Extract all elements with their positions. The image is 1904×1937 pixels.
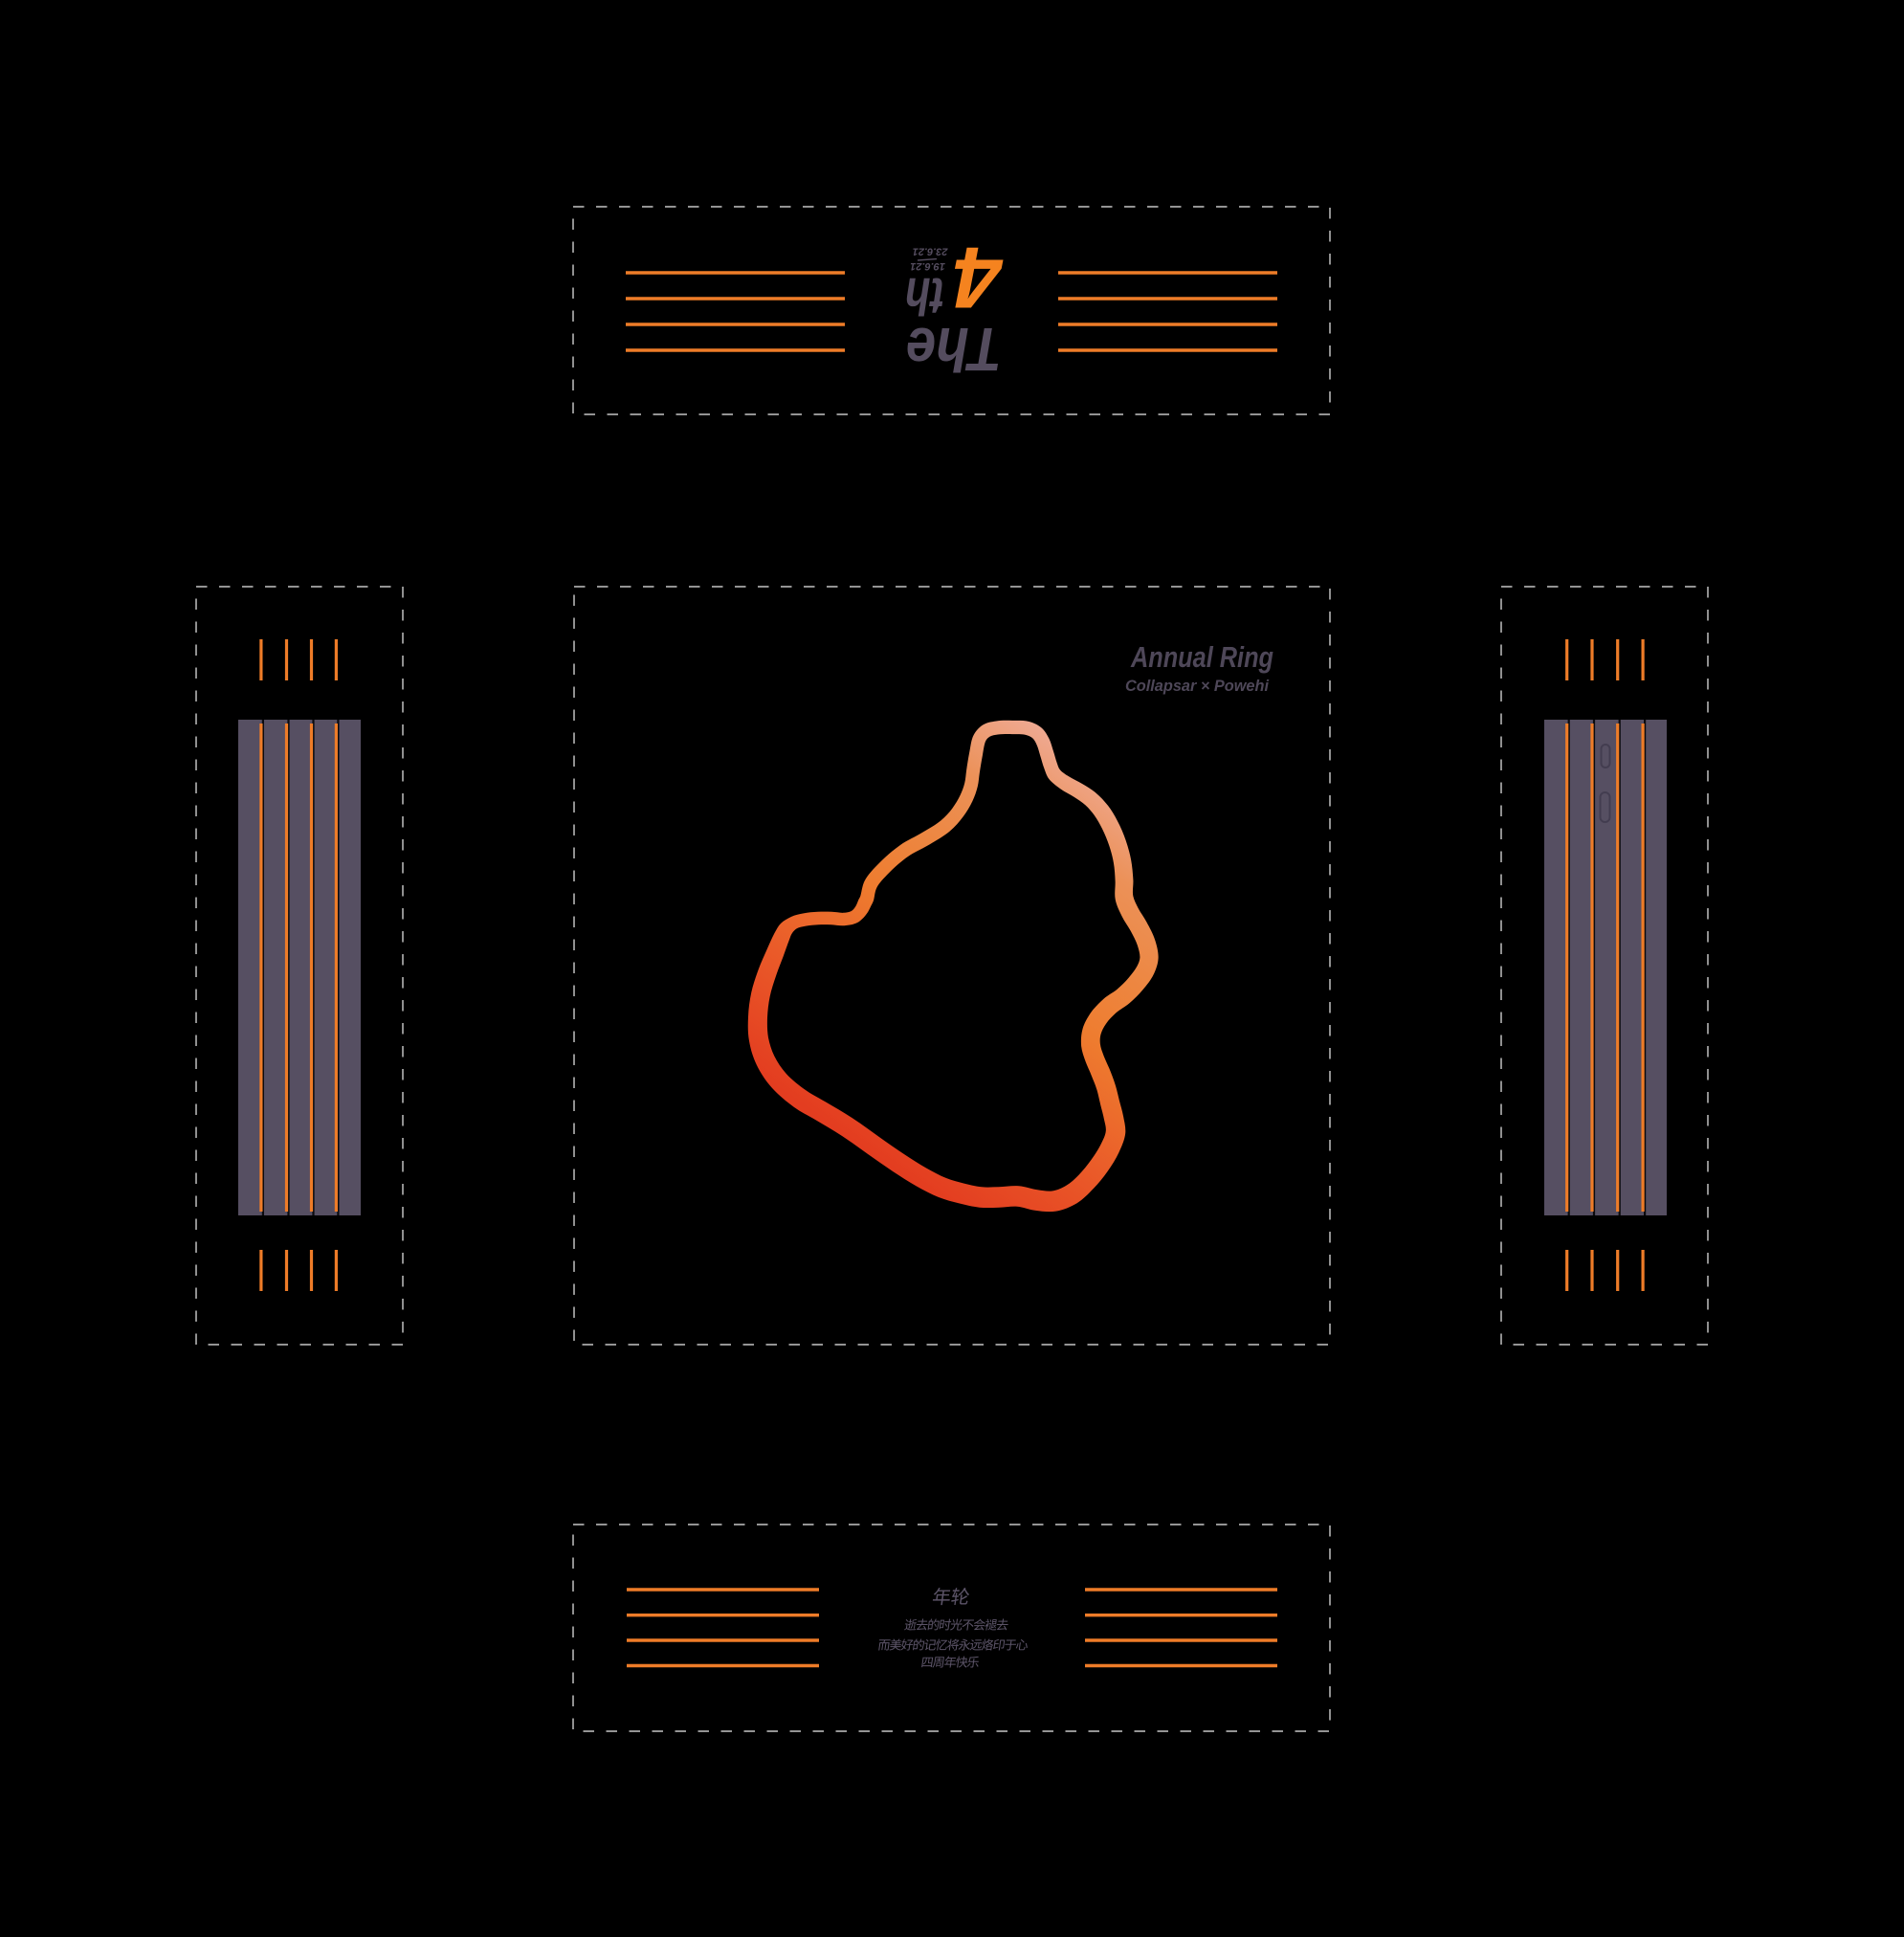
svg-text:23.6.21: 23.6.21 — [913, 246, 949, 257]
svg-text:4: 4 — [953, 229, 1004, 325]
svg-text:19.6.21: 19.6.21 — [910, 260, 945, 272]
svg-text:Collapsar × Powehi: Collapsar × Powehi — [1125, 677, 1270, 695]
svg-text:th: th — [905, 267, 944, 326]
svg-text:Annual Ring: Annual Ring — [1130, 640, 1273, 674]
